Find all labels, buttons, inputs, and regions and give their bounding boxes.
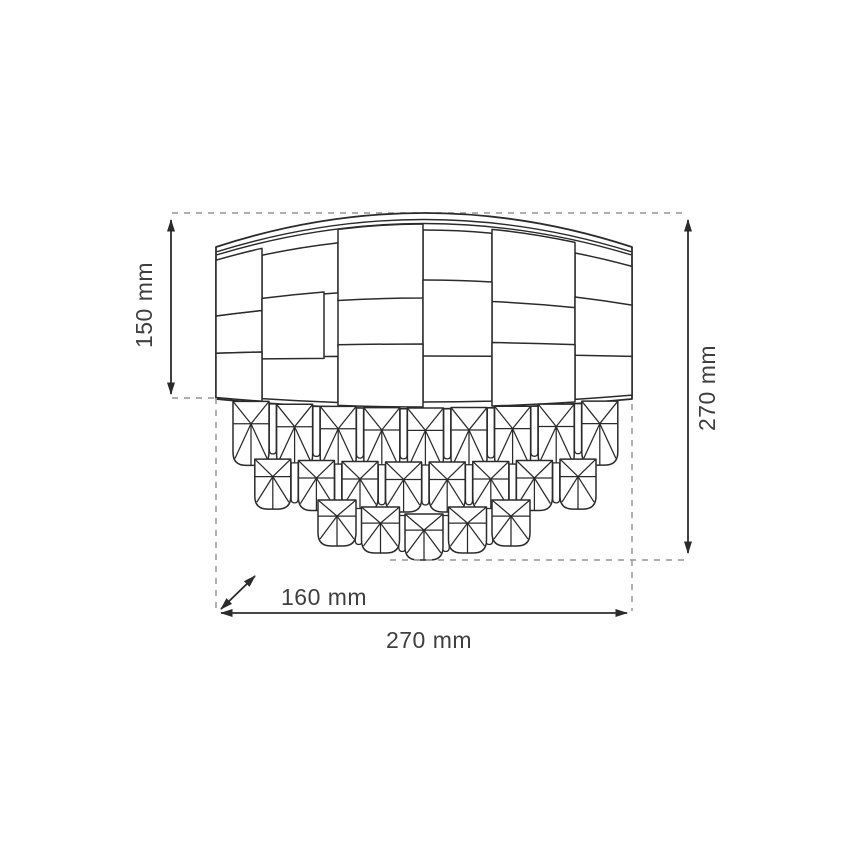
- crystal-strip: [313, 406, 320, 456]
- weave-vertical-tile: [262, 292, 324, 359]
- crystal-strip: [422, 465, 429, 505]
- crystal-strip: [291, 463, 298, 503]
- weave-band-tile: [423, 354, 492, 402]
- total-height-label: 270 mm: [694, 345, 720, 431]
- weave-vertical-tile: [492, 343, 575, 406]
- weave-vertical-tile: [338, 344, 423, 407]
- weave-vertical-tile: [338, 224, 423, 301]
- weave-vertical-tile: [423, 280, 492, 356]
- lamp-dimension-drawing: 150 mm 270 mm 160 mm 270 mm: [0, 0, 868, 868]
- shade-height-label: 150 mm: [131, 262, 157, 348]
- crystal-strip: [487, 408, 494, 458]
- crystal-strip: [269, 404, 276, 454]
- weave-band-tile: [216, 311, 262, 354]
- crystal-strip: [335, 464, 342, 504]
- weave-band-tile: [575, 353, 632, 399]
- weave-band-tile: [262, 356, 338, 402]
- width-label: 270 mm: [386, 627, 472, 653]
- crystal-strip: [531, 406, 538, 456]
- weave-vertical-tile: [216, 352, 262, 401]
- crystal-strip: [509, 464, 516, 504]
- weave-band-tile: [423, 230, 492, 284]
- weave-vertical-tile: [216, 248, 262, 316]
- depth-arrow: [221, 576, 255, 609]
- crystal-strip: [400, 409, 407, 459]
- crystal-strip: [357, 408, 364, 458]
- depth-label: 160 mm: [281, 584, 367, 610]
- weave-vertical-tile: [492, 229, 575, 307]
- weave-band-tile: [338, 296, 423, 347]
- diagram-canvas: 150 mm 270 mm 160 mm 270 mm: [0, 0, 868, 868]
- crystal-strip: [575, 404, 582, 454]
- crystal-strip: [553, 463, 560, 503]
- crystal-strip: [444, 409, 451, 459]
- crystal-strip: [466, 465, 473, 505]
- lamp-figure: [216, 213, 632, 560]
- weave-vertical-tile: [575, 297, 632, 356]
- crystal-strip: [378, 465, 385, 505]
